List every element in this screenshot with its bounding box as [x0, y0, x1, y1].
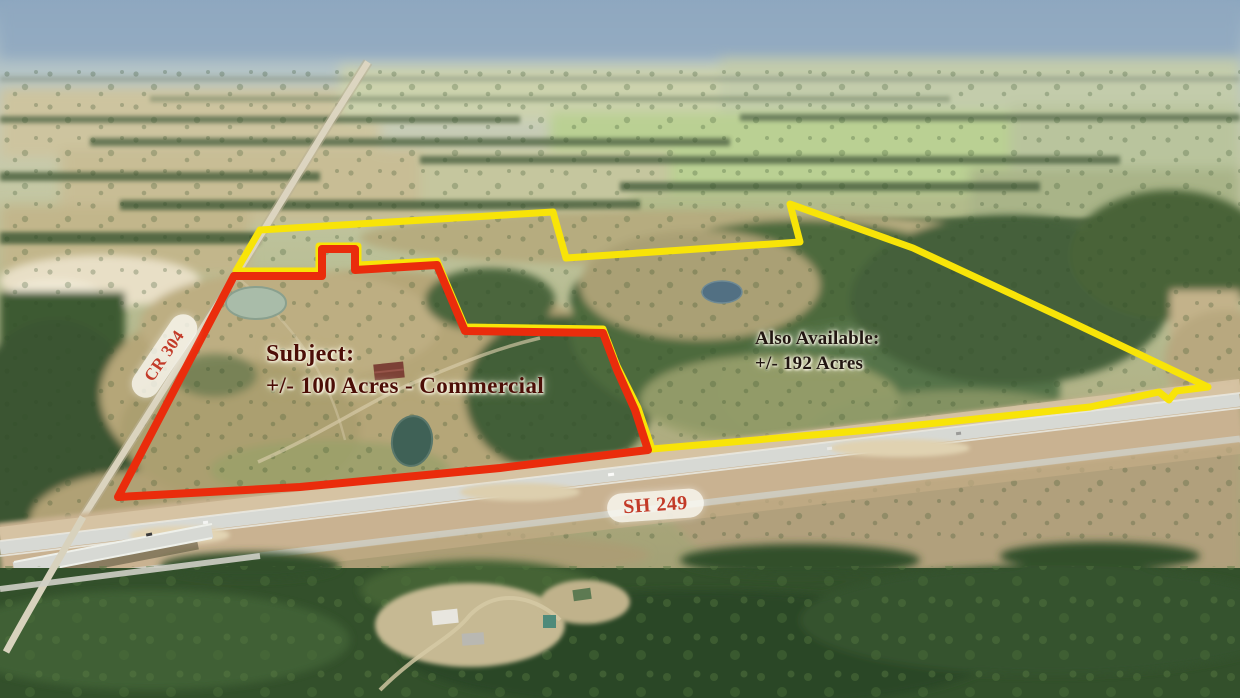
also-available-title: Also Available:	[755, 328, 880, 350]
pond-available	[702, 281, 742, 303]
subject-title: Subject:	[266, 341, 544, 368]
sh249-text: SH 249	[622, 492, 688, 519]
subject-acreage: +/- 100 Acres - Commercial	[266, 373, 544, 399]
also-available-label: Also Available: +/- 192 Acres	[755, 328, 880, 375]
pond-northwest	[226, 287, 286, 319]
subject-parcel-label: Subject: +/- 100 Acres - Commercial	[266, 341, 544, 399]
forest-clearing	[375, 583, 565, 667]
also-available-acreage: +/- 192 Acres	[755, 353, 880, 375]
aerial-photo: Subject: +/- 100 Acres - Commercial Also…	[0, 0, 1240, 698]
